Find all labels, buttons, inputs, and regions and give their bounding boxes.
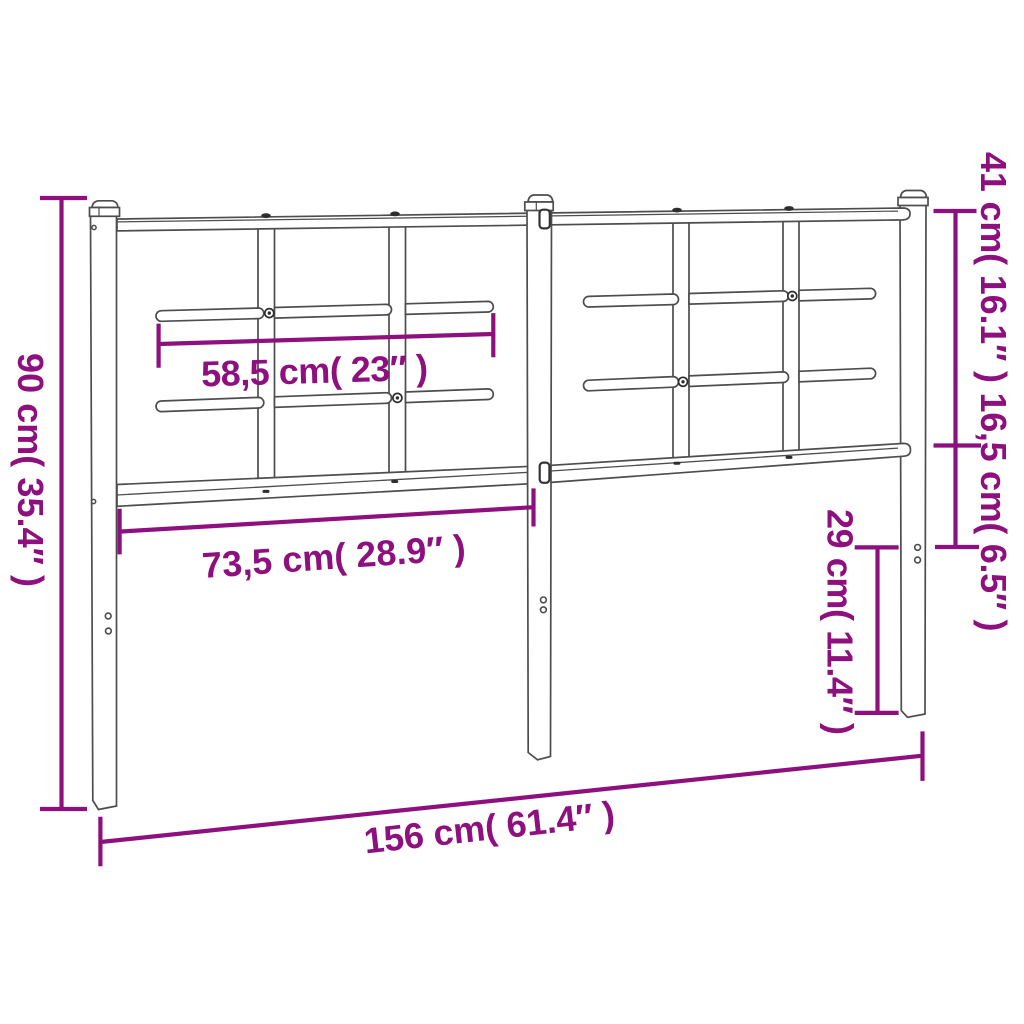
svg-text:16,5 cm( 6.5″ ): 16,5 cm( 6.5″ ): [973, 393, 1014, 632]
svg-text:41 cm( 16.1″ ): 41 cm( 16.1″ ): [973, 152, 1014, 383]
svg-text:29 cm( 11.4″ ): 29 cm( 11.4″ ): [820, 509, 861, 735]
svg-text:90 cm( 35.4″ ): 90 cm( 35.4″ ): [10, 353, 51, 587]
svg-text:58,5 cm( 23″ ): 58,5 cm( 23″ ): [201, 347, 429, 395]
